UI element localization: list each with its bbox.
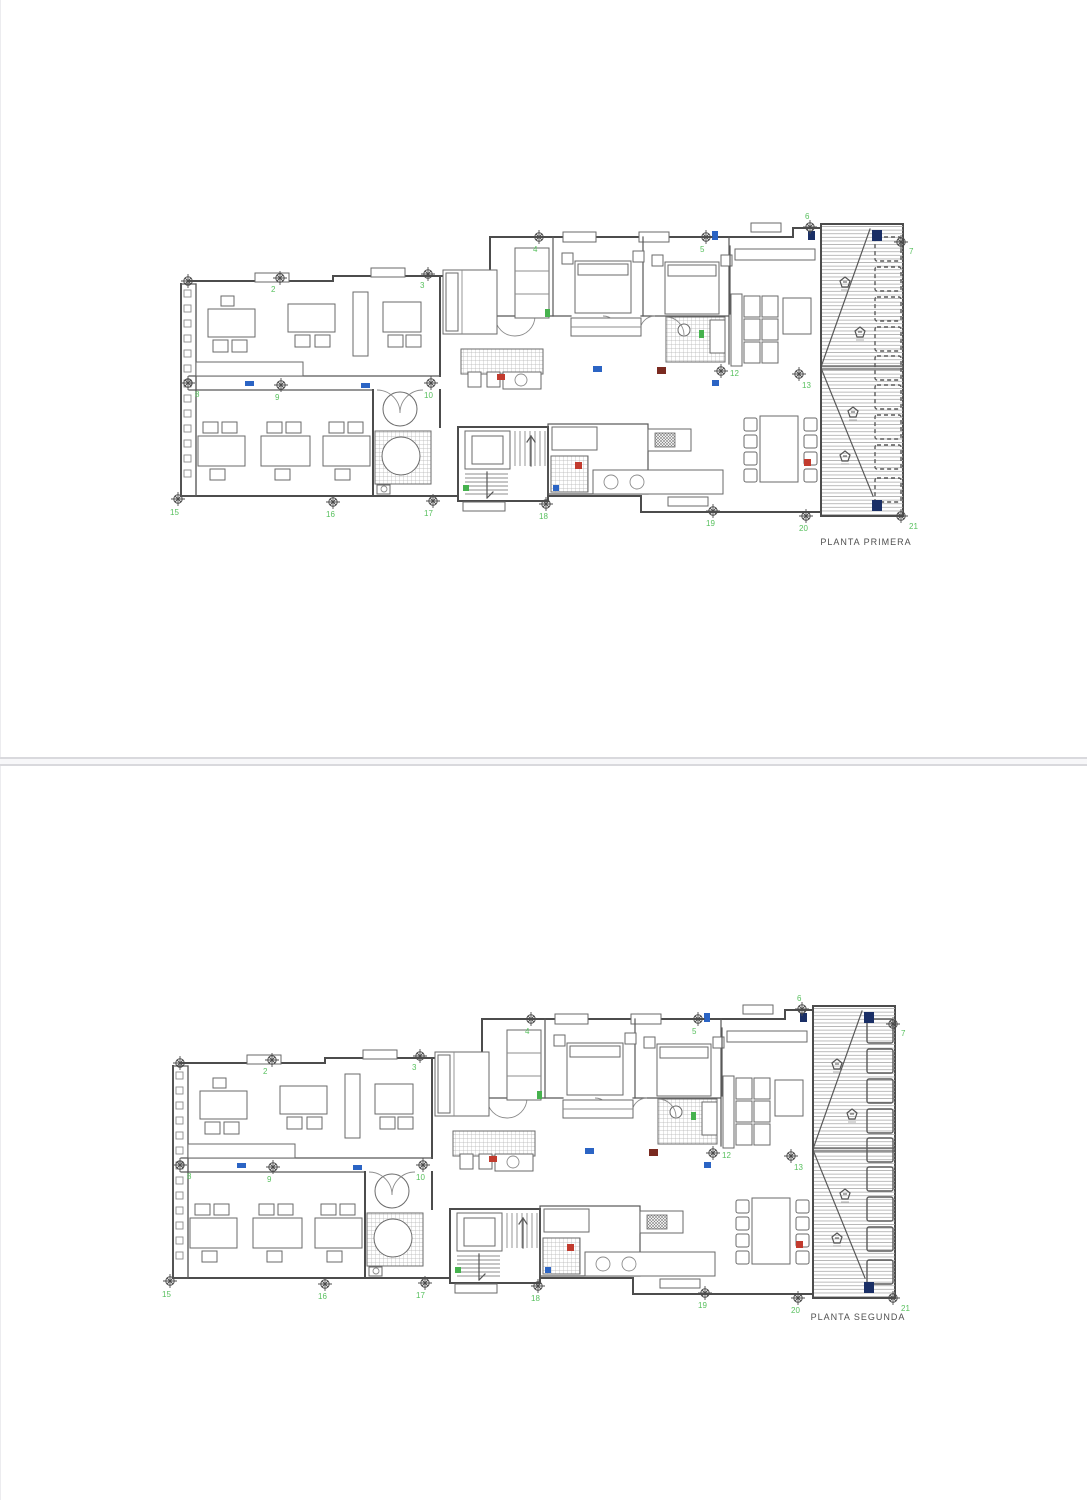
- plan-title-primera: PLANTA PRIMERA: [820, 537, 911, 547]
- floorplan-drawing-segunda: 2345678910121315161718192021 PLANTA SEGU…: [155, 986, 935, 1334]
- axis-number: 5: [692, 1027, 697, 1036]
- accent-mark: [699, 330, 704, 338]
- axis-number: 16: [326, 510, 335, 519]
- page-divider: [0, 757, 1087, 766]
- floorplan-linework: [173, 1005, 895, 1298]
- accent-mark: [649, 1149, 658, 1156]
- accent-mark: [800, 1013, 807, 1022]
- accent-mark: [585, 1148, 594, 1154]
- axis-number: 8: [195, 390, 200, 399]
- accent-mark: [657, 367, 666, 374]
- axis-number: 6: [805, 212, 810, 221]
- axis-marker-icon: [181, 376, 195, 390]
- accent-mark: [712, 380, 719, 386]
- axis-marker-icon: [424, 376, 438, 390]
- accent-mark: [804, 459, 811, 466]
- axis-number: 16: [318, 1292, 327, 1301]
- accent-mark: [537, 1091, 542, 1099]
- axis-marker-icon: [691, 1012, 705, 1026]
- accent-mark: [237, 1163, 246, 1168]
- axis-marker-icon: [416, 1158, 430, 1172]
- accent-mark: [567, 1244, 574, 1251]
- axis-number: 9: [267, 1175, 272, 1184]
- axis-number: 5: [700, 245, 705, 254]
- accent-mark: [593, 366, 602, 372]
- axis-marker-icon: [413, 1049, 427, 1063]
- axis-number: 3: [412, 1063, 417, 1072]
- axis-marker-icon: [531, 1279, 545, 1293]
- axis-number: 18: [539, 512, 548, 521]
- floorplan-drawing-primera: 2345678910121315161718192021 PLANTA PRIM…: [163, 204, 943, 552]
- axis-number: 20: [791, 1306, 800, 1315]
- axis-number: 7: [901, 1029, 906, 1038]
- axis-number: 7: [909, 247, 914, 256]
- plan-page-primera: 2345678910121315161718192021 PLANTA PRIM…: [0, 0, 1087, 757]
- axis-marker-icon: [171, 492, 185, 506]
- axis-number: 6: [797, 994, 802, 1003]
- accent-mark: [545, 309, 550, 317]
- axis-marker-icon: [539, 497, 553, 511]
- accent-mark: [463, 485, 469, 491]
- accent-mark: [361, 383, 370, 388]
- accent-mark: [489, 1156, 497, 1162]
- accent-mark: [455, 1267, 461, 1273]
- axis-marker-icon: [173, 1158, 187, 1172]
- axis-number: 2: [263, 1067, 268, 1076]
- axis-number: 13: [794, 1163, 803, 1172]
- floorplan-linework: [181, 223, 903, 516]
- accent-mark: [245, 381, 254, 386]
- accent-mark: [872, 500, 882, 511]
- axis-number: 8: [187, 1172, 192, 1181]
- accent-mark: [704, 1013, 710, 1022]
- accent-mark: [864, 1282, 874, 1293]
- axis-marker-icon: [326, 495, 340, 509]
- axis-number: 12: [722, 1151, 731, 1160]
- axis-number: 12: [730, 369, 739, 378]
- accent-mark: [704, 1162, 711, 1168]
- axis-marker-icon: [792, 367, 806, 381]
- accent-mark: [553, 485, 559, 491]
- axis-number: 13: [802, 381, 811, 390]
- accent-mark: [497, 374, 505, 380]
- axis-number: 18: [531, 1294, 540, 1303]
- axis-number: 4: [525, 1027, 530, 1036]
- axis-number: 9: [275, 393, 280, 402]
- accent-mark: [712, 231, 718, 240]
- axis-number: 15: [162, 1290, 171, 1299]
- axis-number: 20: [799, 524, 808, 533]
- axis-number: 17: [424, 509, 433, 518]
- axis-marker-icon: [706, 1146, 720, 1160]
- axis-marker-icon: [714, 364, 728, 378]
- axis-marker-icon: [524, 1012, 538, 1026]
- axis-number: 10: [424, 391, 433, 400]
- accent-mark: [872, 230, 882, 241]
- axis-marker-icon: [181, 274, 195, 288]
- accent-mark: [864, 1012, 874, 1023]
- axis-marker-icon: [318, 1277, 332, 1291]
- accent-mark: [691, 1112, 696, 1120]
- accent-mark: [545, 1267, 551, 1273]
- axis-marker-icon: [699, 230, 713, 244]
- axis-number: 2: [271, 285, 276, 294]
- plan-page-segunda: 2345678910121315161718192021 PLANTA SEGU…: [0, 766, 1087, 1500]
- document-canvas: 2345678910121315161718192021 PLANTA PRIM…: [0, 0, 1087, 1500]
- axis-marker-icon: [784, 1149, 798, 1163]
- axis-number: 19: [706, 519, 715, 528]
- axis-number: 21: [909, 522, 918, 531]
- axis-number: 19: [698, 1301, 707, 1310]
- plan-title-segunda: PLANTA SEGUNDA: [811, 1312, 906, 1322]
- accent-mark: [808, 231, 815, 240]
- axis-number: 4: [533, 245, 538, 254]
- axis-marker-icon: [173, 1056, 187, 1070]
- axis-number: 17: [416, 1291, 425, 1300]
- accent-mark: [575, 462, 582, 469]
- axis-number: 10: [416, 1173, 425, 1182]
- axis-number: 15: [170, 508, 179, 517]
- axis-marker-icon: [532, 230, 546, 244]
- accent-mark: [796, 1241, 803, 1248]
- axis-marker-icon: [421, 267, 435, 281]
- axis-marker-icon: [163, 1274, 177, 1288]
- accent-mark: [353, 1165, 362, 1170]
- axis-number: 3: [420, 281, 425, 290]
